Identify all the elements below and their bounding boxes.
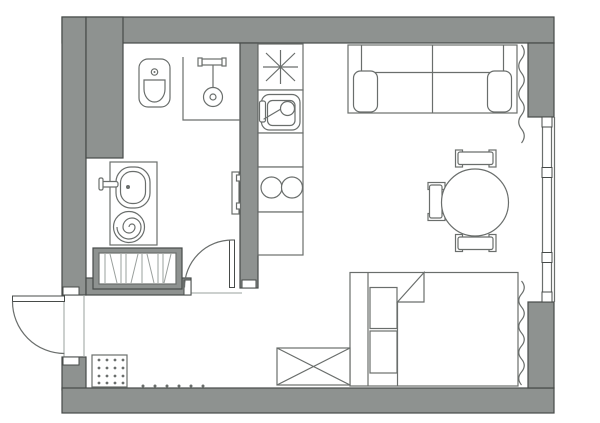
wall-left-upper xyxy=(62,17,86,295)
sofa-armrest xyxy=(354,71,378,112)
bed xyxy=(350,273,518,387)
kitchen xyxy=(258,44,303,255)
floor-plan-canvas xyxy=(0,0,600,423)
heated-towel-rail xyxy=(232,172,241,214)
dining-set xyxy=(428,150,509,252)
wall-right-lower xyxy=(528,302,554,388)
sofa-armrest xyxy=(488,71,512,112)
door-jamb xyxy=(63,357,79,365)
sofa xyxy=(348,45,517,113)
wall-bottom xyxy=(62,388,554,413)
wall-central xyxy=(240,43,258,288)
door-jamb xyxy=(242,280,256,288)
bathroom-door-swing-arc xyxy=(185,240,233,288)
chair-top xyxy=(456,150,497,167)
window-mullion xyxy=(542,117,552,127)
star-symbol-icon xyxy=(263,50,298,84)
floor-plan-drawing xyxy=(0,0,600,423)
wall-duct-block xyxy=(86,17,123,158)
shower-drain-icon xyxy=(204,88,223,107)
door-jamb xyxy=(63,287,79,295)
shower xyxy=(183,57,240,120)
window xyxy=(542,117,555,302)
window-mullion xyxy=(542,253,552,263)
washbasin-counter xyxy=(99,162,157,245)
bathroom-door-leaf xyxy=(230,240,235,288)
curtain-bottom-icon xyxy=(519,281,525,385)
entry-door xyxy=(13,287,85,365)
window-mullion xyxy=(542,292,552,302)
kitchen-unit xyxy=(258,133,303,167)
wall-right-upper xyxy=(528,43,554,117)
wall-top xyxy=(62,17,554,43)
entry-door-leaf xyxy=(13,296,65,302)
burner-icon xyxy=(261,177,282,198)
toilet xyxy=(139,59,170,107)
window-mullion xyxy=(542,168,552,178)
shower-valve-knob xyxy=(222,58,226,66)
round-dining-table xyxy=(442,169,509,236)
crossed-wardrobe xyxy=(277,348,350,385)
kitchen-sink xyxy=(260,95,301,131)
hatched-cabinet xyxy=(93,248,182,289)
entry-door-swing-arc xyxy=(13,302,65,354)
burner-icon xyxy=(282,177,303,198)
shower-valve-knob xyxy=(198,58,202,66)
washbasin-sink xyxy=(99,167,150,208)
floor-tick-dots xyxy=(142,385,205,388)
curtain-top-icon xyxy=(519,45,525,143)
dotted-pouf xyxy=(92,355,127,387)
kitchen-unit xyxy=(258,212,303,255)
washing-machine xyxy=(114,212,145,243)
chair-bottom xyxy=(456,235,497,252)
